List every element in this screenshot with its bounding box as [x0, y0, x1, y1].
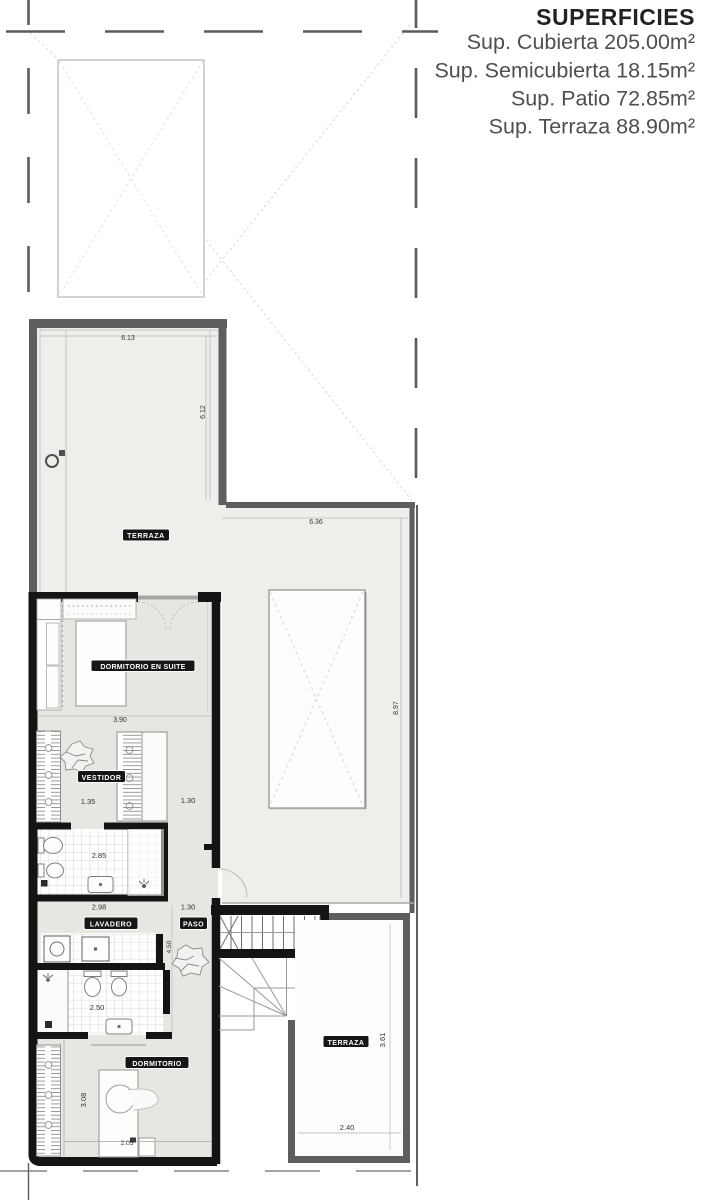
svg-text:Sup. Terraza 88.90m²: Sup. Terraza 88.90m²	[489, 115, 695, 139]
svg-text:2.98: 2.98	[92, 903, 107, 912]
svg-text:3.61: 3.61	[378, 1033, 387, 1048]
svg-text:1.30: 1.30	[181, 903, 196, 912]
svg-text:Sup. Patio 72.85m²: Sup. Patio 72.85m²	[511, 87, 695, 111]
svg-text:4.50: 4.50	[166, 940, 173, 953]
svg-text:8.97: 8.97	[393, 701, 400, 715]
svg-text:6.13: 6.13	[121, 335, 135, 342]
svg-text:SUPERFICIES: SUPERFICIES	[536, 4, 695, 30]
svg-text:1.35: 1.35	[81, 797, 96, 806]
svg-text:2.50: 2.50	[90, 1003, 105, 1012]
svg-text:3.08: 3.08	[79, 1093, 88, 1108]
svg-text:2.40: 2.40	[340, 1123, 355, 1132]
svg-text:DORMITORIO: DORMITORIO	[132, 1061, 182, 1068]
svg-text:Sup. Cubierta 205.00m²: Sup. Cubierta 205.00m²	[467, 30, 695, 54]
svg-text:DORMITORIO EN SUITE: DORMITORIO EN SUITE	[100, 664, 185, 671]
svg-text:TERRAZA: TERRAZA	[328, 1040, 365, 1047]
svg-text:6.12: 6.12	[200, 405, 207, 419]
svg-text:6.36: 6.36	[309, 519, 323, 526]
svg-text:VESTIDOR: VESTIDOR	[82, 775, 122, 782]
svg-text:2.85: 2.85	[92, 851, 107, 860]
svg-text:LAVADERO: LAVADERO	[90, 921, 132, 928]
svg-text:1.30: 1.30	[181, 796, 196, 805]
svg-text:PASO: PASO	[183, 921, 204, 928]
svg-text:TERRAZA: TERRAZA	[127, 533, 165, 540]
svg-text:3.90: 3.90	[113, 717, 127, 724]
svg-text:Sup. Semicubierta 18.15m²: Sup. Semicubierta 18.15m²	[434, 59, 695, 83]
